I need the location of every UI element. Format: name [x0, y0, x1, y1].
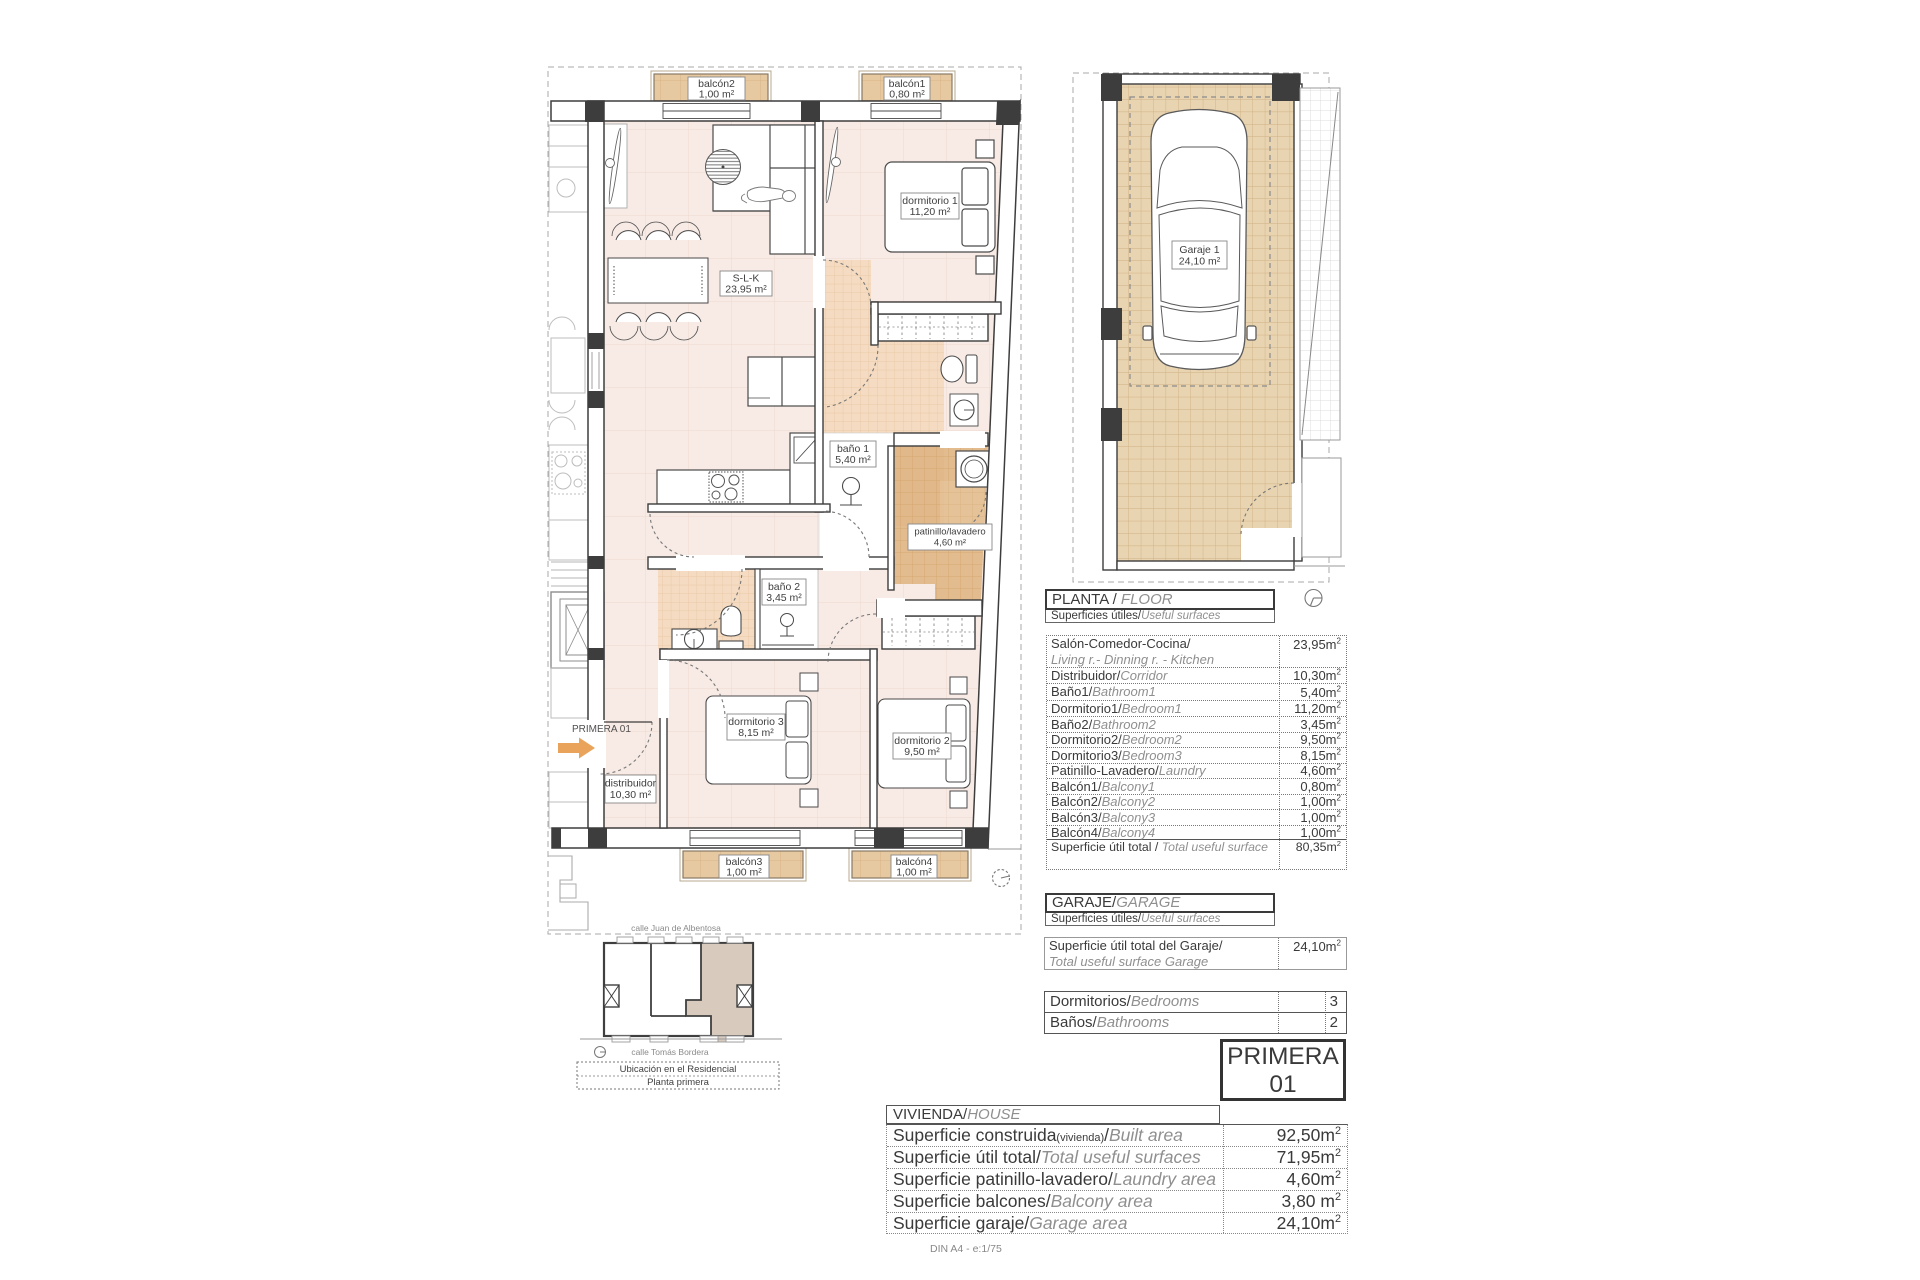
- svg-text:4,60 m²: 4,60 m²: [934, 538, 966, 549]
- svg-text:9,50 m²: 9,50 m²: [904, 746, 940, 758]
- svg-text:3,45 m²: 3,45 m²: [766, 592, 802, 604]
- svg-text:calle Tomás Bordera: calle Tomás Bordera: [631, 1047, 709, 1057]
- svg-text:11,20 m²: 11,20 m²: [910, 206, 951, 218]
- svg-text:5,40 m²: 5,40 m²: [835, 454, 871, 466]
- svg-text:calle Juan de Albentosa: calle Juan de Albentosa: [631, 923, 721, 933]
- svg-text:10,30 m²: 10,30 m²: [610, 789, 652, 801]
- svg-text:8,15 m²: 8,15 m²: [738, 727, 774, 739]
- svg-text:24,10 m²: 24,10 m²: [1179, 256, 1221, 268]
- svg-text:1,00 m²: 1,00 m²: [699, 89, 735, 101]
- svg-text:Ubicación en el Residencial: Ubicación en el Residencial: [620, 1064, 737, 1075]
- svg-text:PRIMERA 01: PRIMERA 01: [572, 724, 631, 735]
- svg-text:distribuidor: distribuidor: [605, 778, 657, 790]
- svg-text:1,00 m²: 1,00 m²: [896, 867, 932, 879]
- svg-text:Planta primera: Planta primera: [647, 1077, 709, 1088]
- svg-text:patinillo/lavadero: patinillo/lavadero: [914, 527, 985, 538]
- svg-text:Garaje 1: Garaje 1: [1179, 244, 1219, 256]
- svg-text:1,00 m²: 1,00 m²: [726, 867, 762, 879]
- svg-text:0,80 m²: 0,80 m²: [889, 89, 925, 101]
- svg-text:23,95 m²: 23,95 m²: [725, 284, 767, 296]
